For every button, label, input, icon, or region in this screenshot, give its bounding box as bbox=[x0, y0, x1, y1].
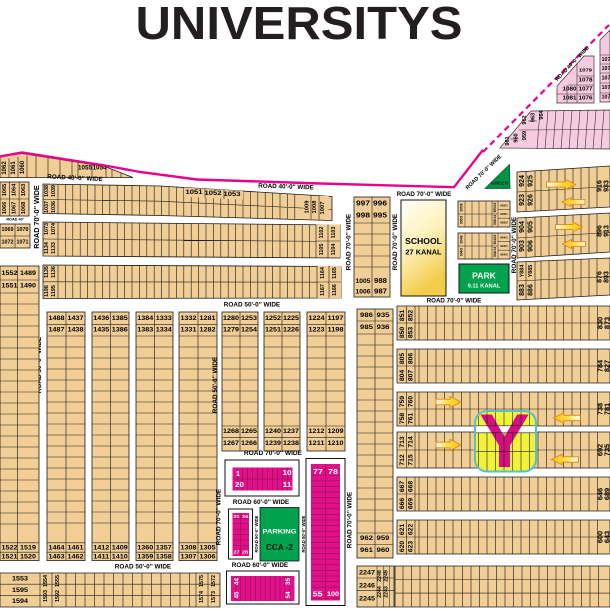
svg-text:1593: 1593 bbox=[43, 590, 49, 602]
svg-text:689: 689 bbox=[602, 488, 610, 500]
svg-text:883: 883 bbox=[519, 284, 526, 296]
svg-text:807: 807 bbox=[408, 370, 415, 382]
svg-text:1306: 1306 bbox=[200, 554, 216, 561]
svg-text:GREEN: GREEN bbox=[491, 181, 509, 187]
svg-text:622: 622 bbox=[408, 524, 415, 536]
svg-text:ROAD 50'-0'' WIDE: ROAD 50'-0'' WIDE bbox=[212, 356, 219, 413]
svg-text:1036: 1036 bbox=[51, 201, 57, 213]
svg-text:PARKING: PARKING bbox=[263, 529, 297, 536]
svg-text:1489: 1489 bbox=[20, 270, 36, 277]
svg-text:ROAD 50'-0'' WIDE: ROAD 50'-0'' WIDE bbox=[115, 564, 172, 571]
svg-text:100: 100 bbox=[327, 591, 340, 598]
svg-text:904/2: 904/2 bbox=[500, 253, 508, 257]
svg-text:715: 715 bbox=[408, 454, 415, 466]
svg-text:107: 107 bbox=[602, 57, 610, 63]
svg-text:896: 896 bbox=[597, 225, 604, 237]
svg-text:Y885: Y885 bbox=[528, 265, 534, 278]
svg-text:1411: 1411 bbox=[93, 554, 109, 561]
svg-text:2244: 2244 bbox=[377, 586, 383, 598]
svg-text:1412: 1412 bbox=[93, 545, 109, 552]
svg-text:1573: 1573 bbox=[211, 591, 217, 603]
svg-text:669: 669 bbox=[408, 498, 415, 510]
svg-text:1165: 1165 bbox=[332, 267, 338, 279]
svg-text:1069: 1069 bbox=[2, 227, 15, 233]
svg-text:ROAD 70'-0'' WIDE: ROAD 70'-0'' WIDE bbox=[392, 213, 399, 270]
svg-text:758: 758 bbox=[399, 413, 406, 425]
svg-text:107: 107 bbox=[602, 95, 610, 101]
svg-text:998: 998 bbox=[356, 213, 370, 220]
svg-text:1072: 1072 bbox=[2, 240, 14, 246]
svg-text:1134: 1134 bbox=[44, 242, 50, 254]
svg-text:893: 893 bbox=[604, 271, 610, 283]
svg-text:1196: 1196 bbox=[44, 285, 50, 297]
svg-text:1224: 1224 bbox=[309, 315, 325, 322]
svg-text:1307: 1307 bbox=[181, 554, 197, 561]
svg-text:1386: 1386 bbox=[112, 327, 128, 334]
svg-text:1226: 1226 bbox=[283, 327, 299, 334]
svg-text:107: 107 bbox=[602, 66, 610, 72]
svg-text:905/1: 905/1 bbox=[500, 212, 508, 216]
svg-text:886: 886 bbox=[527, 284, 534, 296]
svg-text:ROAD 70'-0'' WIDE: ROAD 70'-0'' WIDE bbox=[32, 185, 41, 249]
svg-text:1592: 1592 bbox=[55, 590, 61, 602]
svg-text:713: 713 bbox=[399, 436, 406, 448]
svg-text:904/14: 904/14 bbox=[493, 247, 497, 257]
svg-text:735: 735 bbox=[602, 444, 610, 456]
svg-text:904/8: 904/8 bbox=[460, 235, 464, 243]
svg-text:9.11 KANAL: 9.11 KANAL bbox=[468, 284, 501, 290]
svg-text:666: 666 bbox=[399, 498, 406, 510]
svg-text:623: 623 bbox=[408, 541, 415, 553]
svg-text:1383: 1383 bbox=[137, 327, 153, 334]
svg-text:1519: 1519 bbox=[20, 545, 36, 552]
svg-text:905/23: 905/23 bbox=[493, 202, 497, 212]
svg-text:806: 806 bbox=[408, 353, 415, 365]
svg-text:1071: 1071 bbox=[17, 240, 30, 246]
svg-text:761: 761 bbox=[408, 413, 415, 425]
svg-text:1074: 1074 bbox=[51, 223, 57, 235]
svg-text:1198: 1198 bbox=[328, 327, 344, 334]
svg-text:44: 44 bbox=[234, 578, 241, 585]
svg-text:1554: 1554 bbox=[43, 575, 49, 587]
svg-text:1166: 1166 bbox=[332, 284, 338, 296]
svg-text:913: 913 bbox=[604, 225, 610, 237]
svg-text:1102: 1102 bbox=[319, 227, 325, 239]
svg-text:1575: 1575 bbox=[199, 575, 205, 587]
svg-text:2246: 2246 bbox=[359, 583, 375, 590]
svg-text:1308: 1308 bbox=[181, 545, 197, 552]
svg-text:ROAD 50'-0'' WIDE: ROAD 50'-0'' WIDE bbox=[224, 302, 281, 309]
svg-text:904/1: 904/1 bbox=[500, 244, 508, 248]
svg-text:1357: 1357 bbox=[156, 545, 172, 552]
svg-text:876: 876 bbox=[597, 271, 604, 283]
svg-text:827: 827 bbox=[602, 360, 610, 372]
svg-text:1063: 1063 bbox=[21, 184, 27, 196]
svg-text:1521: 1521 bbox=[2, 554, 18, 561]
svg-text:1037: 1037 bbox=[44, 201, 50, 213]
svg-text:1135: 1135 bbox=[44, 266, 50, 278]
svg-text:923: 923 bbox=[519, 194, 526, 206]
svg-text:1384: 1384 bbox=[137, 315, 153, 322]
svg-text:1254: 1254 bbox=[241, 327, 257, 334]
svg-text:668: 668 bbox=[408, 481, 415, 493]
svg-text:35: 35 bbox=[285, 578, 292, 585]
svg-text:ROAD 70'-0'' WIDE: ROAD 70'-0'' WIDE bbox=[347, 491, 354, 548]
svg-text:1280: 1280 bbox=[223, 315, 239, 322]
svg-text:1223: 1223 bbox=[309, 327, 325, 334]
svg-text:1435: 1435 bbox=[93, 327, 109, 334]
svg-text:1359: 1359 bbox=[137, 554, 153, 561]
svg-text:1555: 1555 bbox=[55, 575, 61, 587]
svg-text:78: 78 bbox=[328, 467, 338, 476]
svg-text:1522: 1522 bbox=[2, 545, 18, 552]
svg-text:1006: 1006 bbox=[356, 289, 371, 296]
svg-text:107: 107 bbox=[602, 85, 610, 91]
svg-text:1409: 1409 bbox=[112, 545, 128, 552]
svg-text:1239: 1239 bbox=[265, 440, 281, 447]
svg-text:21: 21 bbox=[234, 514, 241, 519]
svg-text:ROAD 40': ROAD 40' bbox=[6, 218, 23, 222]
svg-text:1268: 1268 bbox=[223, 428, 239, 435]
svg-text:54: 54 bbox=[285, 591, 292, 598]
svg-text:1064: 1064 bbox=[12, 183, 18, 196]
svg-text:959: 959 bbox=[377, 535, 390, 542]
svg-text:1488: 1488 bbox=[49, 315, 65, 322]
svg-text:1252: 1252 bbox=[265, 315, 281, 322]
svg-text:1104: 1104 bbox=[331, 244, 337, 256]
svg-text:27: 27 bbox=[234, 550, 241, 555]
svg-text:905/9: 905/9 bbox=[460, 216, 464, 224]
svg-text:962: 962 bbox=[360, 535, 373, 542]
svg-text:1103: 1103 bbox=[331, 227, 337, 239]
svg-text:1060: 1060 bbox=[20, 160, 26, 174]
svg-text:643: 643 bbox=[602, 531, 610, 543]
svg-text:805: 805 bbox=[399, 353, 406, 365]
svg-text:1065: 1065 bbox=[2, 184, 8, 196]
svg-text:933: 933 bbox=[604, 180, 610, 192]
svg-text:1251: 1251 bbox=[265, 327, 281, 334]
svg-text:1238: 1238 bbox=[283, 440, 299, 447]
svg-text:1463: 1463 bbox=[49, 554, 65, 561]
svg-text:1267: 1267 bbox=[223, 440, 239, 447]
svg-text:77: 77 bbox=[313, 467, 323, 476]
svg-text:1331: 1331 bbox=[181, 327, 197, 334]
svg-text:1594: 1594 bbox=[12, 598, 28, 605]
svg-text:995: 995 bbox=[373, 213, 387, 220]
svg-text:1209: 1209 bbox=[328, 428, 344, 435]
svg-text:1464: 1464 bbox=[49, 545, 65, 552]
svg-text:959: 959 bbox=[522, 131, 528, 140]
svg-text:926: 926 bbox=[527, 194, 534, 206]
svg-text:1385: 1385 bbox=[112, 315, 128, 322]
svg-text:759: 759 bbox=[399, 396, 406, 408]
svg-text:1265: 1265 bbox=[241, 428, 257, 435]
svg-text:1212: 1212 bbox=[309, 428, 325, 435]
svg-text:997: 997 bbox=[356, 201, 370, 208]
svg-text:961: 961 bbox=[505, 136, 511, 145]
svg-text:1007: 1007 bbox=[320, 202, 326, 215]
svg-text:1360: 1360 bbox=[137, 545, 153, 552]
svg-text:986: 986 bbox=[360, 312, 373, 319]
svg-text:781: 781 bbox=[602, 403, 610, 415]
svg-text:850: 850 bbox=[399, 327, 406, 339]
svg-text:1080: 1080 bbox=[563, 87, 577, 93]
svg-text:1281: 1281 bbox=[200, 315, 216, 322]
svg-text:1005: 1005 bbox=[356, 278, 371, 285]
svg-text:1574: 1574 bbox=[199, 591, 205, 603]
svg-text:1333: 1333 bbox=[156, 315, 172, 322]
svg-text:1009: 1009 bbox=[305, 200, 311, 214]
svg-text:2249: 2249 bbox=[384, 570, 390, 582]
svg-text:851: 851 bbox=[399, 310, 406, 322]
svg-text:1066: 1066 bbox=[2, 202, 8, 214]
svg-text:667: 667 bbox=[399, 481, 406, 493]
svg-text:964: 964 bbox=[539, 109, 545, 119]
svg-text:ROAD 70'-0'' WIDE: ROAD 70'-0'' WIDE bbox=[397, 191, 452, 198]
svg-text:905/1: 905/1 bbox=[500, 203, 508, 207]
svg-text:936: 936 bbox=[377, 324, 390, 331]
svg-text:34: 34 bbox=[242, 514, 249, 519]
svg-text:1039: 1039 bbox=[51, 185, 57, 197]
svg-text:987: 987 bbox=[374, 289, 387, 296]
svg-text:1067: 1067 bbox=[12, 202, 18, 214]
svg-text:11: 11 bbox=[283, 482, 292, 489]
svg-text:2245: 2245 bbox=[359, 596, 375, 603]
svg-text:925: 925 bbox=[527, 175, 534, 187]
svg-text:1195: 1195 bbox=[51, 285, 57, 297]
svg-text:1253: 1253 bbox=[241, 315, 257, 322]
svg-text:1061: 1061 bbox=[11, 161, 17, 175]
svg-text:1210: 1210 bbox=[328, 440, 344, 447]
svg-text:904/9: 904/9 bbox=[460, 248, 464, 256]
svg-text:45: 45 bbox=[234, 591, 241, 598]
svg-text:988: 988 bbox=[374, 278, 387, 285]
svg-text:CCA -2: CCA -2 bbox=[266, 543, 293, 552]
svg-text:904/1: 904/1 bbox=[500, 235, 508, 239]
svg-text:Y884: Y884 bbox=[519, 265, 525, 278]
svg-text:620: 620 bbox=[399, 541, 406, 553]
svg-text:1237: 1237 bbox=[283, 428, 299, 435]
svg-text:1279: 1279 bbox=[223, 327, 239, 334]
svg-text:1332: 1332 bbox=[181, 315, 197, 322]
svg-text:1551: 1551 bbox=[2, 283, 18, 290]
svg-text:873: 873 bbox=[602, 317, 610, 329]
svg-text:960: 960 bbox=[377, 547, 390, 554]
svg-text:904/23: 904/23 bbox=[493, 234, 497, 244]
svg-text:621: 621 bbox=[399, 524, 406, 536]
svg-text:1490: 1490 bbox=[20, 283, 36, 290]
svg-text:1487: 1487 bbox=[49, 327, 65, 334]
svg-text:1062: 1062 bbox=[2, 161, 8, 175]
svg-text:2243: 2243 bbox=[384, 586, 390, 598]
svg-text:1197: 1197 bbox=[328, 315, 344, 322]
svg-text:ROAD 70'-0'' WIDE: ROAD 70'-0'' WIDE bbox=[244, 450, 303, 457]
svg-text:ROAD 70'-0'' WIDE: ROAD 70'-0'' WIDE bbox=[427, 298, 482, 305]
svg-text:905/14: 905/14 bbox=[493, 215, 497, 225]
svg-text:1164: 1164 bbox=[320, 267, 326, 279]
svg-text:853: 853 bbox=[408, 327, 415, 339]
svg-text:963: 963 bbox=[531, 113, 537, 122]
svg-text:1436: 1436 bbox=[93, 315, 109, 322]
svg-text:1077: 1077 bbox=[579, 87, 593, 93]
svg-text:1068: 1068 bbox=[21, 202, 27, 214]
svg-text:1105: 1105 bbox=[319, 244, 325, 256]
svg-text:1008: 1008 bbox=[312, 200, 318, 214]
svg-text:1053: 1053 bbox=[224, 191, 241, 198]
svg-text:1334: 1334 bbox=[156, 327, 172, 334]
svg-text:1133: 1133 bbox=[51, 242, 57, 254]
svg-text:996: 996 bbox=[373, 201, 387, 208]
svg-text:ROAD 60'-0'' WIDE: ROAD 60'-0'' WIDE bbox=[233, 499, 290, 506]
svg-text:ROAD 50'-0'' WIDE: ROAD 50'-0'' WIDE bbox=[301, 515, 306, 552]
svg-text:ROAD 70'-0'' WIDE: ROAD 70'-0'' WIDE bbox=[216, 488, 223, 545]
svg-text:961: 961 bbox=[360, 547, 373, 554]
svg-text:916: 916 bbox=[597, 180, 604, 192]
svg-text:20: 20 bbox=[235, 482, 244, 489]
svg-text:SCHOOL: SCHOOL bbox=[405, 236, 442, 246]
svg-text:UNIVERSITYS: UNIVERSITYS bbox=[136, 0, 463, 49]
svg-text:905/8: 905/8 bbox=[460, 203, 464, 211]
svg-text:1081: 1081 bbox=[563, 96, 577, 102]
svg-text:962: 962 bbox=[522, 115, 528, 124]
svg-text:1572: 1572 bbox=[211, 575, 217, 587]
svg-text:ROAD 70'-0'' WIDE: ROAD 70'-0'' WIDE bbox=[346, 213, 353, 270]
svg-text:1073: 1073 bbox=[44, 223, 50, 235]
svg-text:10: 10 bbox=[283, 470, 292, 477]
svg-text:852: 852 bbox=[408, 310, 415, 322]
svg-text:1070: 1070 bbox=[17, 227, 29, 233]
svg-text:960: 960 bbox=[514, 133, 520, 142]
svg-text:2247: 2247 bbox=[359, 570, 375, 577]
svg-text:712: 712 bbox=[399, 454, 406, 466]
svg-text:1462: 1462 bbox=[68, 554, 84, 561]
svg-text:804: 804 bbox=[399, 370, 406, 382]
svg-text:1055: 1055 bbox=[78, 165, 92, 172]
svg-text:1: 1 bbox=[236, 469, 240, 478]
svg-text:1240: 1240 bbox=[265, 428, 281, 435]
svg-text:1437: 1437 bbox=[68, 315, 84, 322]
svg-text:1266: 1266 bbox=[241, 440, 257, 447]
svg-text:ROAD 60'-0'' WIDE: ROAD 60'-0'' WIDE bbox=[232, 562, 289, 569]
svg-text:1520: 1520 bbox=[20, 554, 36, 561]
svg-text:27 KANAL: 27 KANAL bbox=[405, 248, 442, 257]
svg-text:906: 906 bbox=[527, 240, 534, 252]
svg-text:1438: 1438 bbox=[68, 327, 84, 334]
svg-text:ROAD 50'-0'' WIDE: ROAD 50'-0'' WIDE bbox=[254, 515, 259, 552]
svg-text:28: 28 bbox=[242, 550, 249, 555]
svg-text:1211: 1211 bbox=[309, 440, 325, 447]
svg-text:1552: 1552 bbox=[2, 270, 18, 277]
svg-text:1410: 1410 bbox=[112, 554, 128, 561]
svg-text:1461: 1461 bbox=[68, 545, 84, 552]
svg-text:904: 904 bbox=[519, 221, 526, 233]
svg-text:1225: 1225 bbox=[283, 315, 299, 322]
svg-text:1167: 1167 bbox=[320, 284, 326, 296]
svg-text:1358: 1358 bbox=[156, 554, 172, 561]
svg-text:1553: 1553 bbox=[12, 576, 28, 583]
svg-text:1052: 1052 bbox=[205, 190, 222, 197]
svg-text:905/2: 905/2 bbox=[500, 221, 508, 225]
svg-text:1051: 1051 bbox=[186, 189, 203, 196]
svg-text:PARK: PARK bbox=[472, 271, 497, 281]
svg-text:924: 924 bbox=[519, 175, 526, 187]
svg-text:1079: 1079 bbox=[579, 68, 592, 74]
svg-text:985: 985 bbox=[360, 324, 373, 331]
svg-text:1305: 1305 bbox=[200, 545, 216, 552]
svg-text:1076: 1076 bbox=[579, 96, 593, 102]
svg-text:55: 55 bbox=[313, 590, 323, 599]
svg-text:1078: 1078 bbox=[579, 78, 593, 84]
svg-text:935: 935 bbox=[377, 312, 390, 319]
svg-text:107: 107 bbox=[602, 76, 610, 82]
svg-text:1038: 1038 bbox=[44, 185, 50, 197]
svg-text:760: 760 bbox=[408, 396, 415, 408]
svg-text:1136: 1136 bbox=[51, 266, 57, 278]
svg-text:714: 714 bbox=[408, 436, 415, 448]
svg-text:905: 905 bbox=[527, 221, 534, 233]
svg-text:1282: 1282 bbox=[200, 327, 216, 334]
svg-text:1595: 1595 bbox=[12, 587, 28, 594]
svg-text:903: 903 bbox=[519, 240, 526, 252]
svg-text:2248: 2248 bbox=[377, 570, 383, 582]
